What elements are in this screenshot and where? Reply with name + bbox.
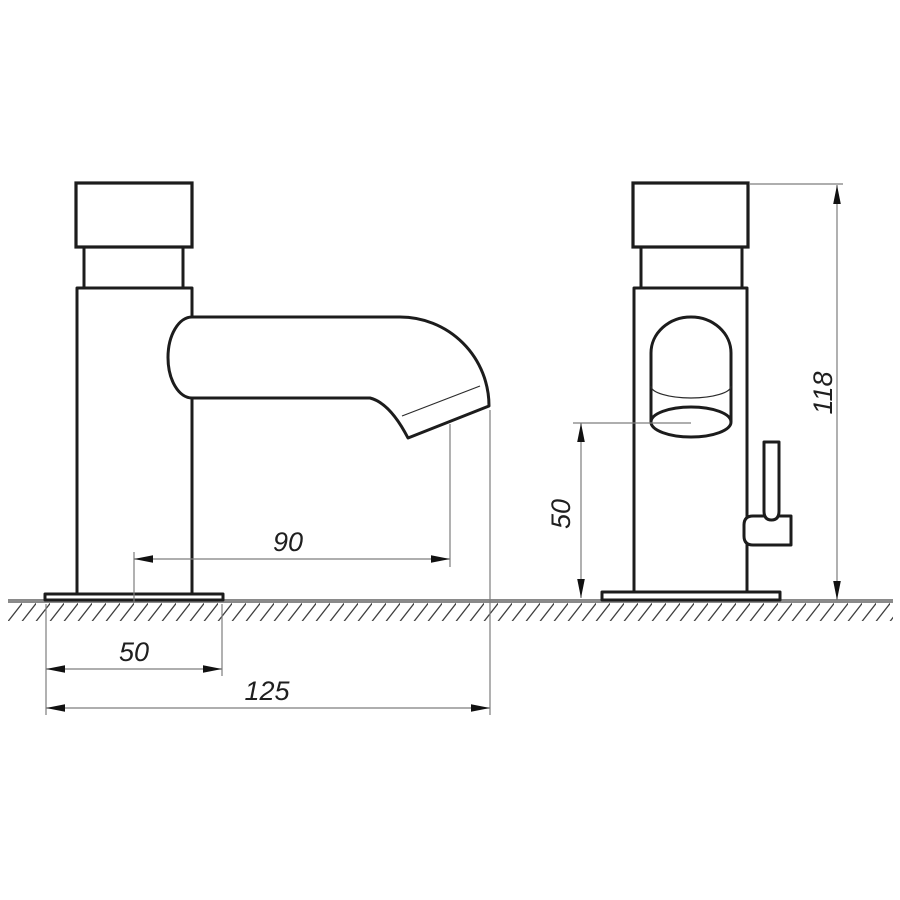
dim-50-height-arrow-top [577, 423, 585, 442]
side-view [45, 183, 489, 600]
front-view-outlet-ellipse [651, 407, 731, 437]
front-view-handle-stem [764, 442, 779, 520]
dim-90-arrow-right [431, 555, 450, 563]
side-view-neck [84, 247, 183, 288]
dim-118-arrow-top [833, 185, 841, 204]
dim-label-50-base: 50 [119, 637, 149, 667]
dim-label-125: 125 [244, 676, 290, 706]
dim-label-118: 118 [808, 371, 838, 414]
ground [8, 601, 893, 621]
dim-50-base-arrow-left [46, 665, 65, 673]
faucet-technical-drawing: 90 50 125 50 118 [0, 0, 900, 900]
front-view [602, 183, 791, 600]
front-view-cap [633, 183, 748, 247]
dim-125-arrow-right [471, 704, 490, 712]
dim-118-arrow-bottom [833, 581, 841, 600]
side-view-cap [76, 183, 192, 247]
dim-50-base-arrow-right [203, 665, 222, 673]
dim-label-90: 90 [273, 527, 303, 557]
side-view-spout [168, 317, 489, 438]
dim-label-50-height: 50 [546, 499, 576, 529]
front-view-neck [641, 247, 742, 288]
front-view-base-plate [602, 592, 780, 600]
dim-50-height-arrow-bottom [577, 579, 585, 598]
ground-hatching [8, 603, 893, 621]
dim-125-arrow-left [46, 704, 65, 712]
drawing-canvas: 90 50 125 50 118 [0, 0, 900, 900]
